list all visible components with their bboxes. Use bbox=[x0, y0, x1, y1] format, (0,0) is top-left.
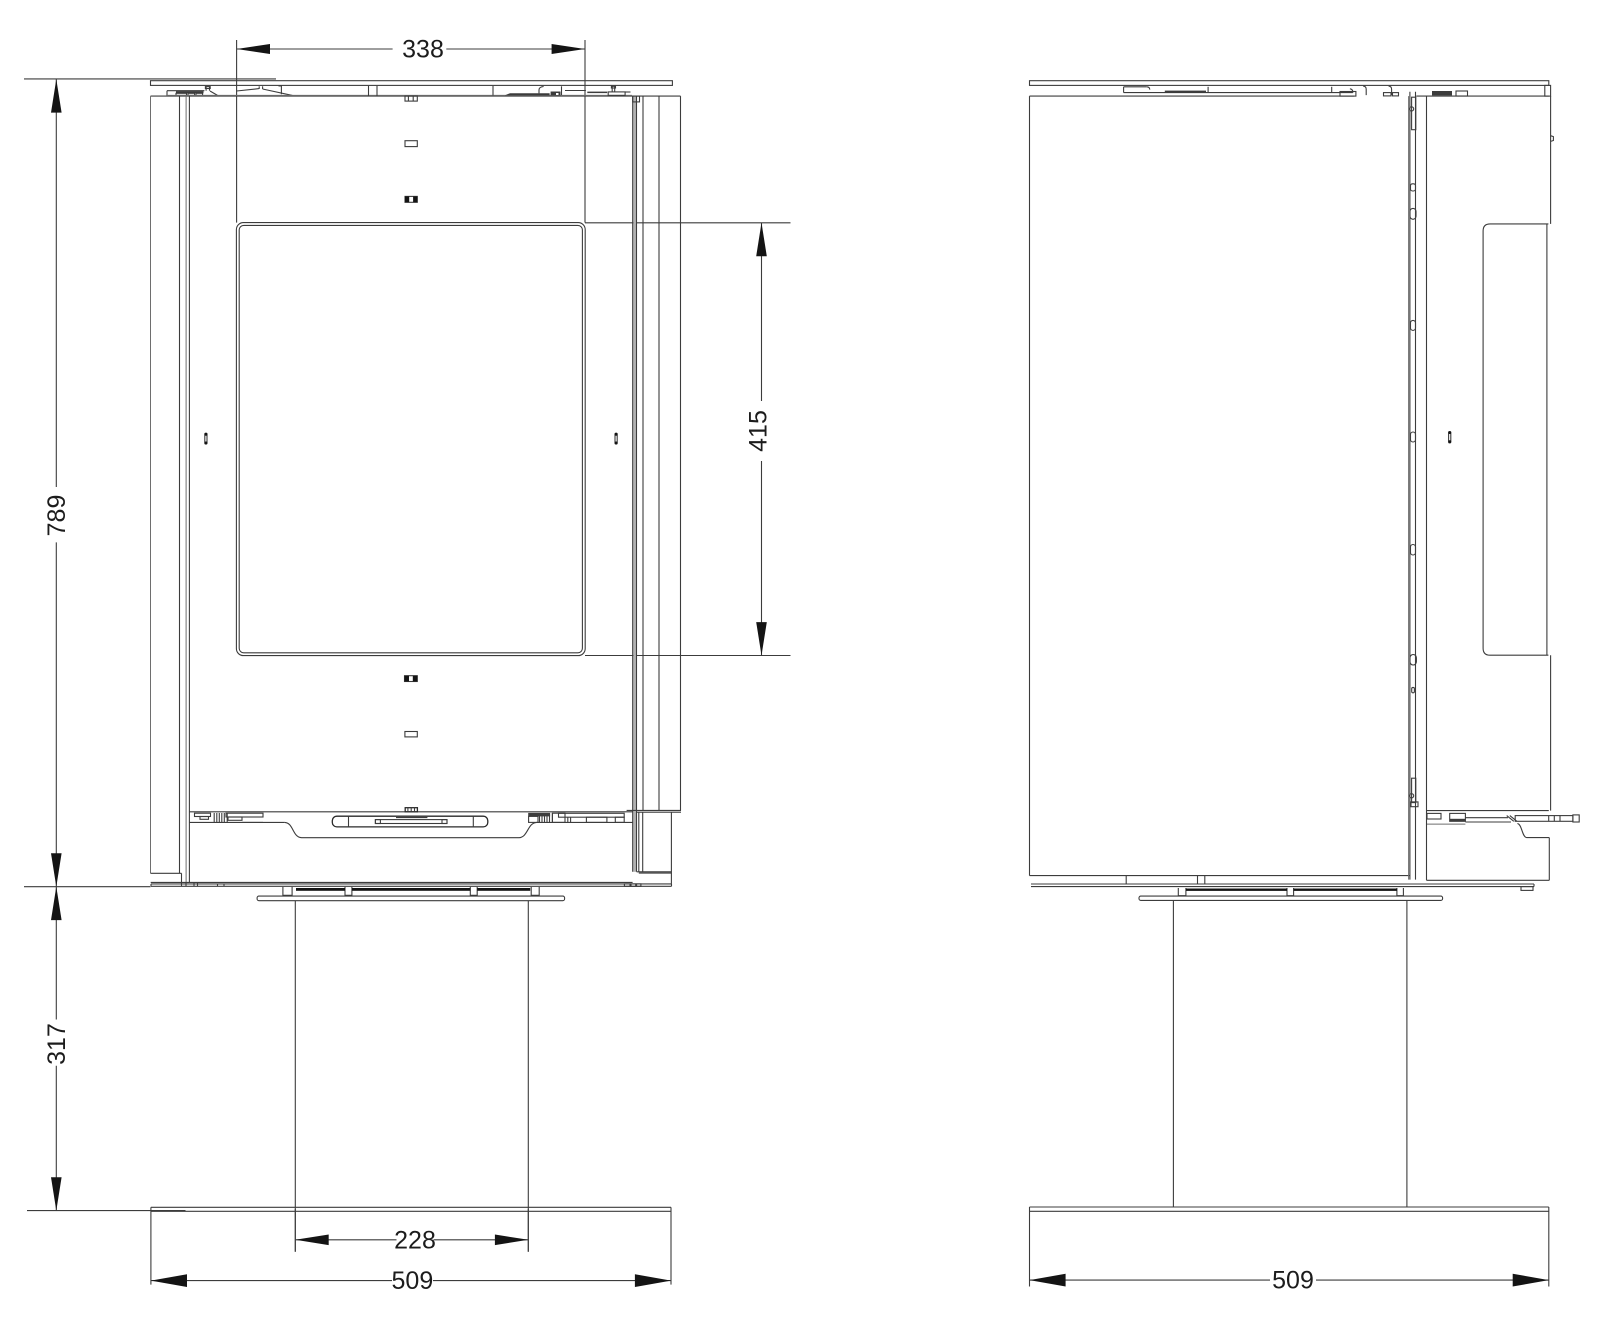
svg-text:415: 415 bbox=[744, 410, 772, 452]
svg-text:338: 338 bbox=[402, 36, 444, 64]
svg-text:509: 509 bbox=[392, 1267, 434, 1295]
svg-text:509: 509 bbox=[1272, 1267, 1314, 1295]
svg-text:228: 228 bbox=[394, 1226, 436, 1254]
svg-text:317: 317 bbox=[43, 1023, 71, 1065]
svg-text:789: 789 bbox=[43, 495, 71, 537]
